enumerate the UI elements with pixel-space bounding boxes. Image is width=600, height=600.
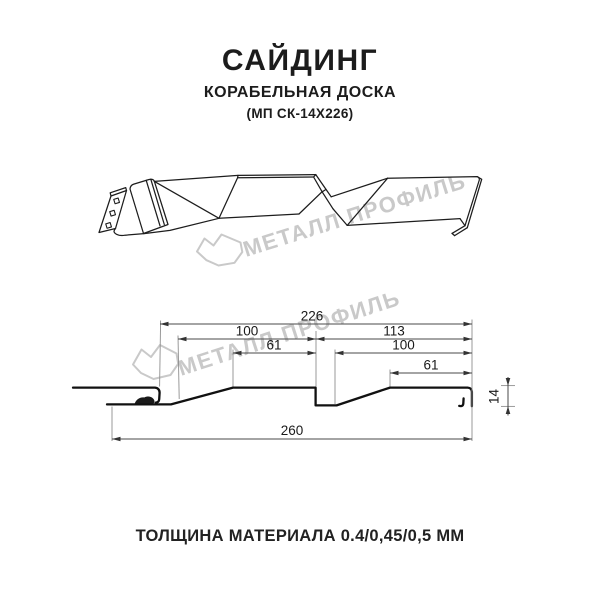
dim-right-flat: 61 <box>423 358 438 373</box>
dimension-lines <box>112 324 508 439</box>
dim-left-flat: 61 <box>266 338 281 353</box>
right-edge-hook <box>459 398 463 406</box>
dim-profile-height: 14 <box>487 389 502 405</box>
dimension-arrows <box>112 322 510 442</box>
profile-outline <box>107 388 472 407</box>
dim-overall-top: 226 <box>301 309 324 324</box>
cross-section-view <box>73 388 472 407</box>
watermark-lower: МЕТАЛЛ ПРОФИЛЬ <box>133 285 404 381</box>
nailing-strip <box>99 188 127 233</box>
thickness-note: ТОЛЩИНА МАТЕРИАЛА 0.4/0,45/0,5 ММ <box>0 527 600 546</box>
metal-profil-logo-icon <box>133 345 178 379</box>
watermark-text: МЕТАЛЛ ПРОФИЛЬ <box>175 285 404 381</box>
metal-profil-logo-icon <box>197 235 242 266</box>
dim-overall-bottom: 260 <box>281 423 304 438</box>
dim-right-pitch: 113 <box>383 324 405 339</box>
dim-left-pitch: 100 <box>236 324 259 339</box>
product-drawing-page: САЙДИНГ КОРАБЕЛЬНАЯ ДОСКА (МП СК-14Х226)… <box>0 0 600 600</box>
lock-clip-detail <box>135 397 155 405</box>
technical-drawing-canvas: МЕТАЛЛ ПРОФИЛЬ МЕТАЛЛ ПРОФИЛЬ <box>0 0 600 600</box>
dim-right-inner: 100 <box>392 338 415 353</box>
